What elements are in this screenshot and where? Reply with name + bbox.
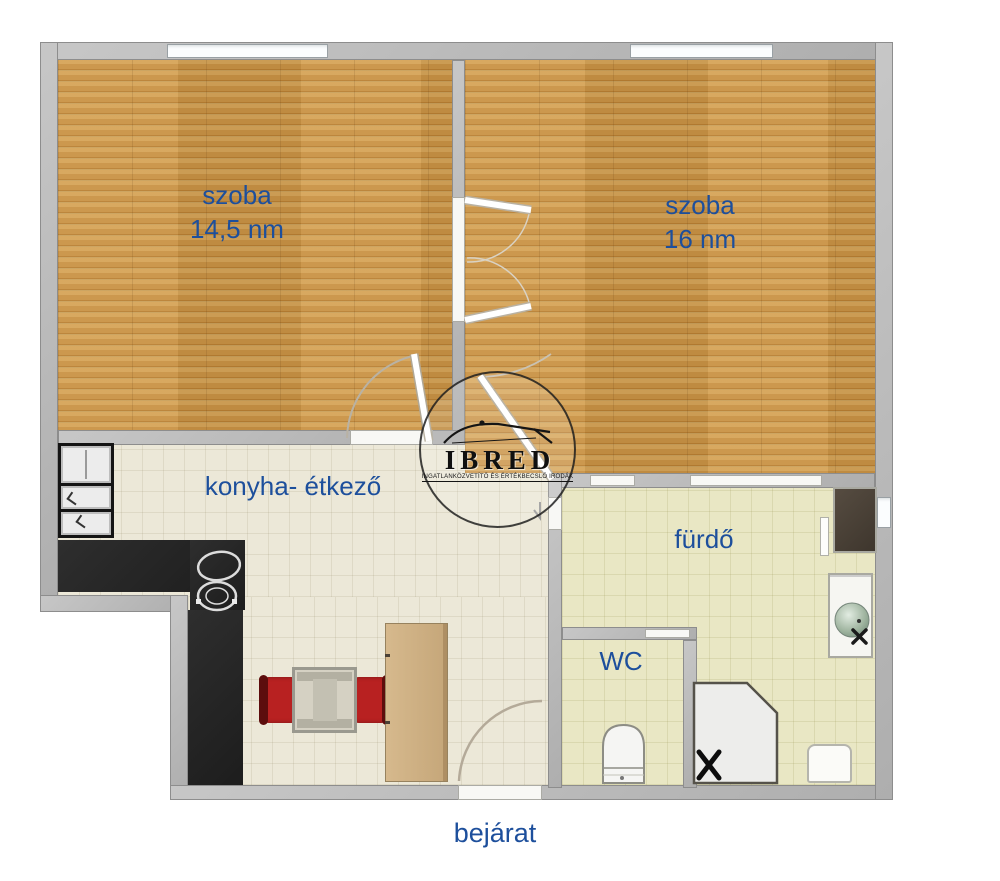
- watermark-brand: IBRED: [445, 447, 556, 473]
- sideboard-cabinet: [385, 623, 448, 782]
- wall-left: [40, 42, 58, 612]
- chair-backrest: [259, 675, 268, 725]
- sink-counter: [828, 573, 873, 658]
- room1-name: szoba: [190, 178, 284, 212]
- bathroom-top-opening-small: [590, 475, 635, 486]
- appliance-top-cell: [61, 446, 111, 486]
- room2-name: szoba: [664, 188, 736, 222]
- table-center-column: [313, 679, 337, 721]
- appliance-divider-line: [85, 450, 87, 479]
- wc-door-opening: [645, 629, 690, 638]
- chair-icon-right: [352, 677, 388, 723]
- window-room1: [167, 44, 328, 58]
- appliance-handle-icon: [66, 492, 80, 506]
- wall-right: [875, 42, 893, 800]
- double-door-opening: [452, 197, 465, 322]
- window-room2: [630, 44, 773, 58]
- floor-plan: IBRED INGATLANKÖZVETÍTŐ ÉS ÉRTÉKBECSLŐ I…: [0, 0, 1000, 881]
- cabinet-handle: [385, 654, 390, 657]
- room1-area: 14,5 nm: [190, 212, 284, 246]
- room2-area: 16 nm: [664, 222, 736, 256]
- bidet-icon: [807, 744, 852, 783]
- entrance-label: bejárat: [454, 816, 537, 850]
- washing-machine-icon: [833, 487, 877, 553]
- fridge-oven-icon: [58, 443, 114, 538]
- watermark-tagline: INGATLANKÖZVETÍTŐ ÉS ÉRTÉKBECSLŐ IRODÁK: [422, 474, 574, 482]
- bathroom-label: fürdő: [674, 522, 733, 556]
- cabinet-handle: [385, 721, 390, 724]
- entrance-door-opening: [458, 785, 542, 800]
- watermark-logo: IBRED INGATLANKÖZVETÍTŐ ÉS ÉRTÉKBECSLŐ I…: [419, 371, 576, 528]
- appliance-bottom-cell: [61, 512, 111, 535]
- dining-table-icon: [292, 667, 357, 733]
- roof-icon: [438, 417, 558, 447]
- room2-label: szoba 16 nm: [664, 188, 736, 256]
- appliance-mid-cell: [61, 486, 111, 512]
- stove-icon: [190, 540, 245, 610]
- wc-label: WC: [599, 644, 642, 678]
- window-bathroom-right: [877, 497, 891, 528]
- appliance-handle-icon: [75, 515, 89, 529]
- wall-notch-vertical: [170, 595, 188, 800]
- bathroom-top-opening-large: [690, 475, 822, 486]
- kitchen-counter-vertical: [188, 610, 243, 785]
- radiator-icon: [820, 517, 829, 556]
- room1-label: szoba 14,5 nm: [190, 178, 284, 246]
- wall-wc-shower-divider: [683, 640, 697, 788]
- kitchen-label: konyha- étkező: [205, 469, 381, 503]
- wall-notch-horizontal: [40, 595, 188, 612]
